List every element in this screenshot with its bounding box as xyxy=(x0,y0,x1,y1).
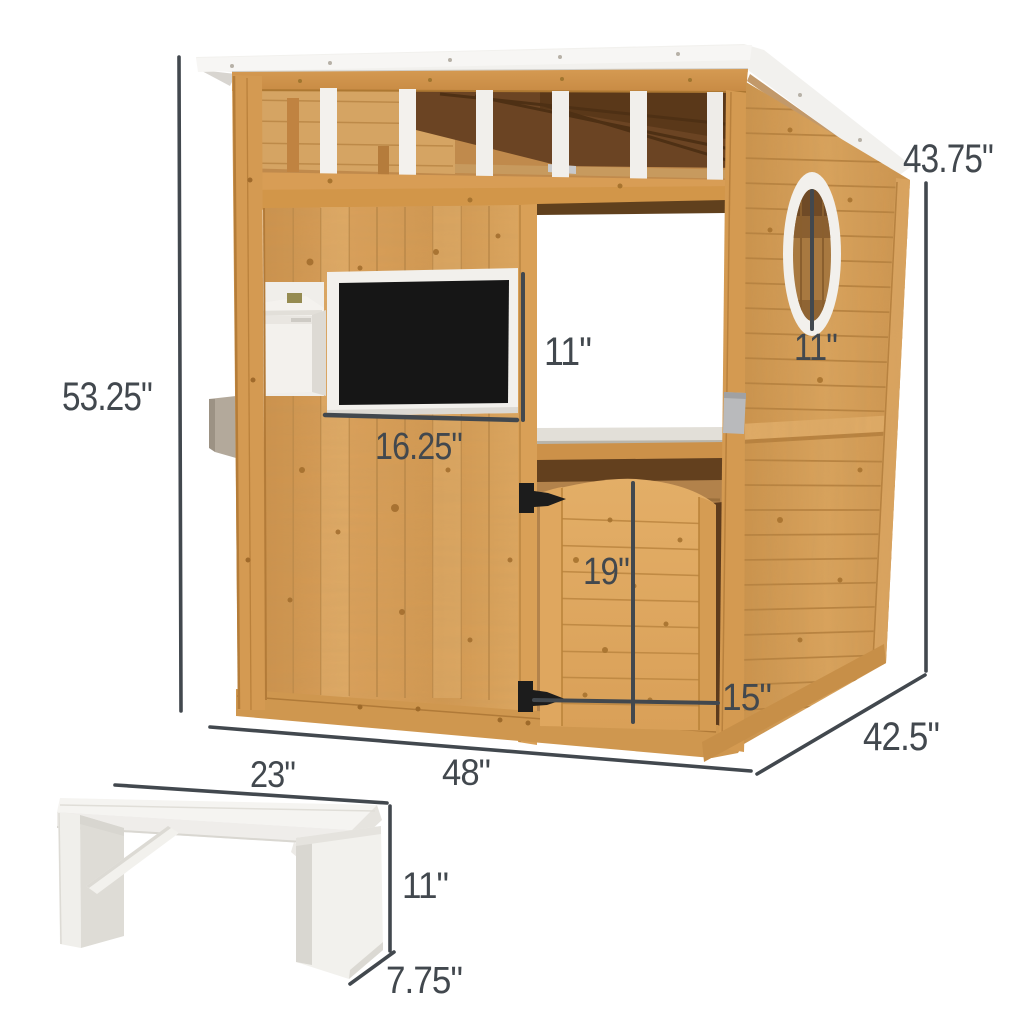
svg-text:15": 15" xyxy=(722,677,771,719)
svg-text:23": 23" xyxy=(250,754,295,795)
svg-text:11": 11" xyxy=(544,330,591,374)
svg-text:43.75": 43.75" xyxy=(903,137,993,181)
svg-text:48": 48" xyxy=(442,752,490,793)
svg-text:11": 11" xyxy=(794,327,837,369)
svg-text:16.25": 16.25" xyxy=(375,426,462,468)
svg-text:53.25": 53.25" xyxy=(62,375,152,419)
svg-text:11": 11" xyxy=(402,865,448,906)
svg-text:7.75": 7.75" xyxy=(386,960,462,1002)
svg-text:19": 19" xyxy=(583,551,629,593)
svg-text:42.5": 42.5" xyxy=(863,715,939,759)
